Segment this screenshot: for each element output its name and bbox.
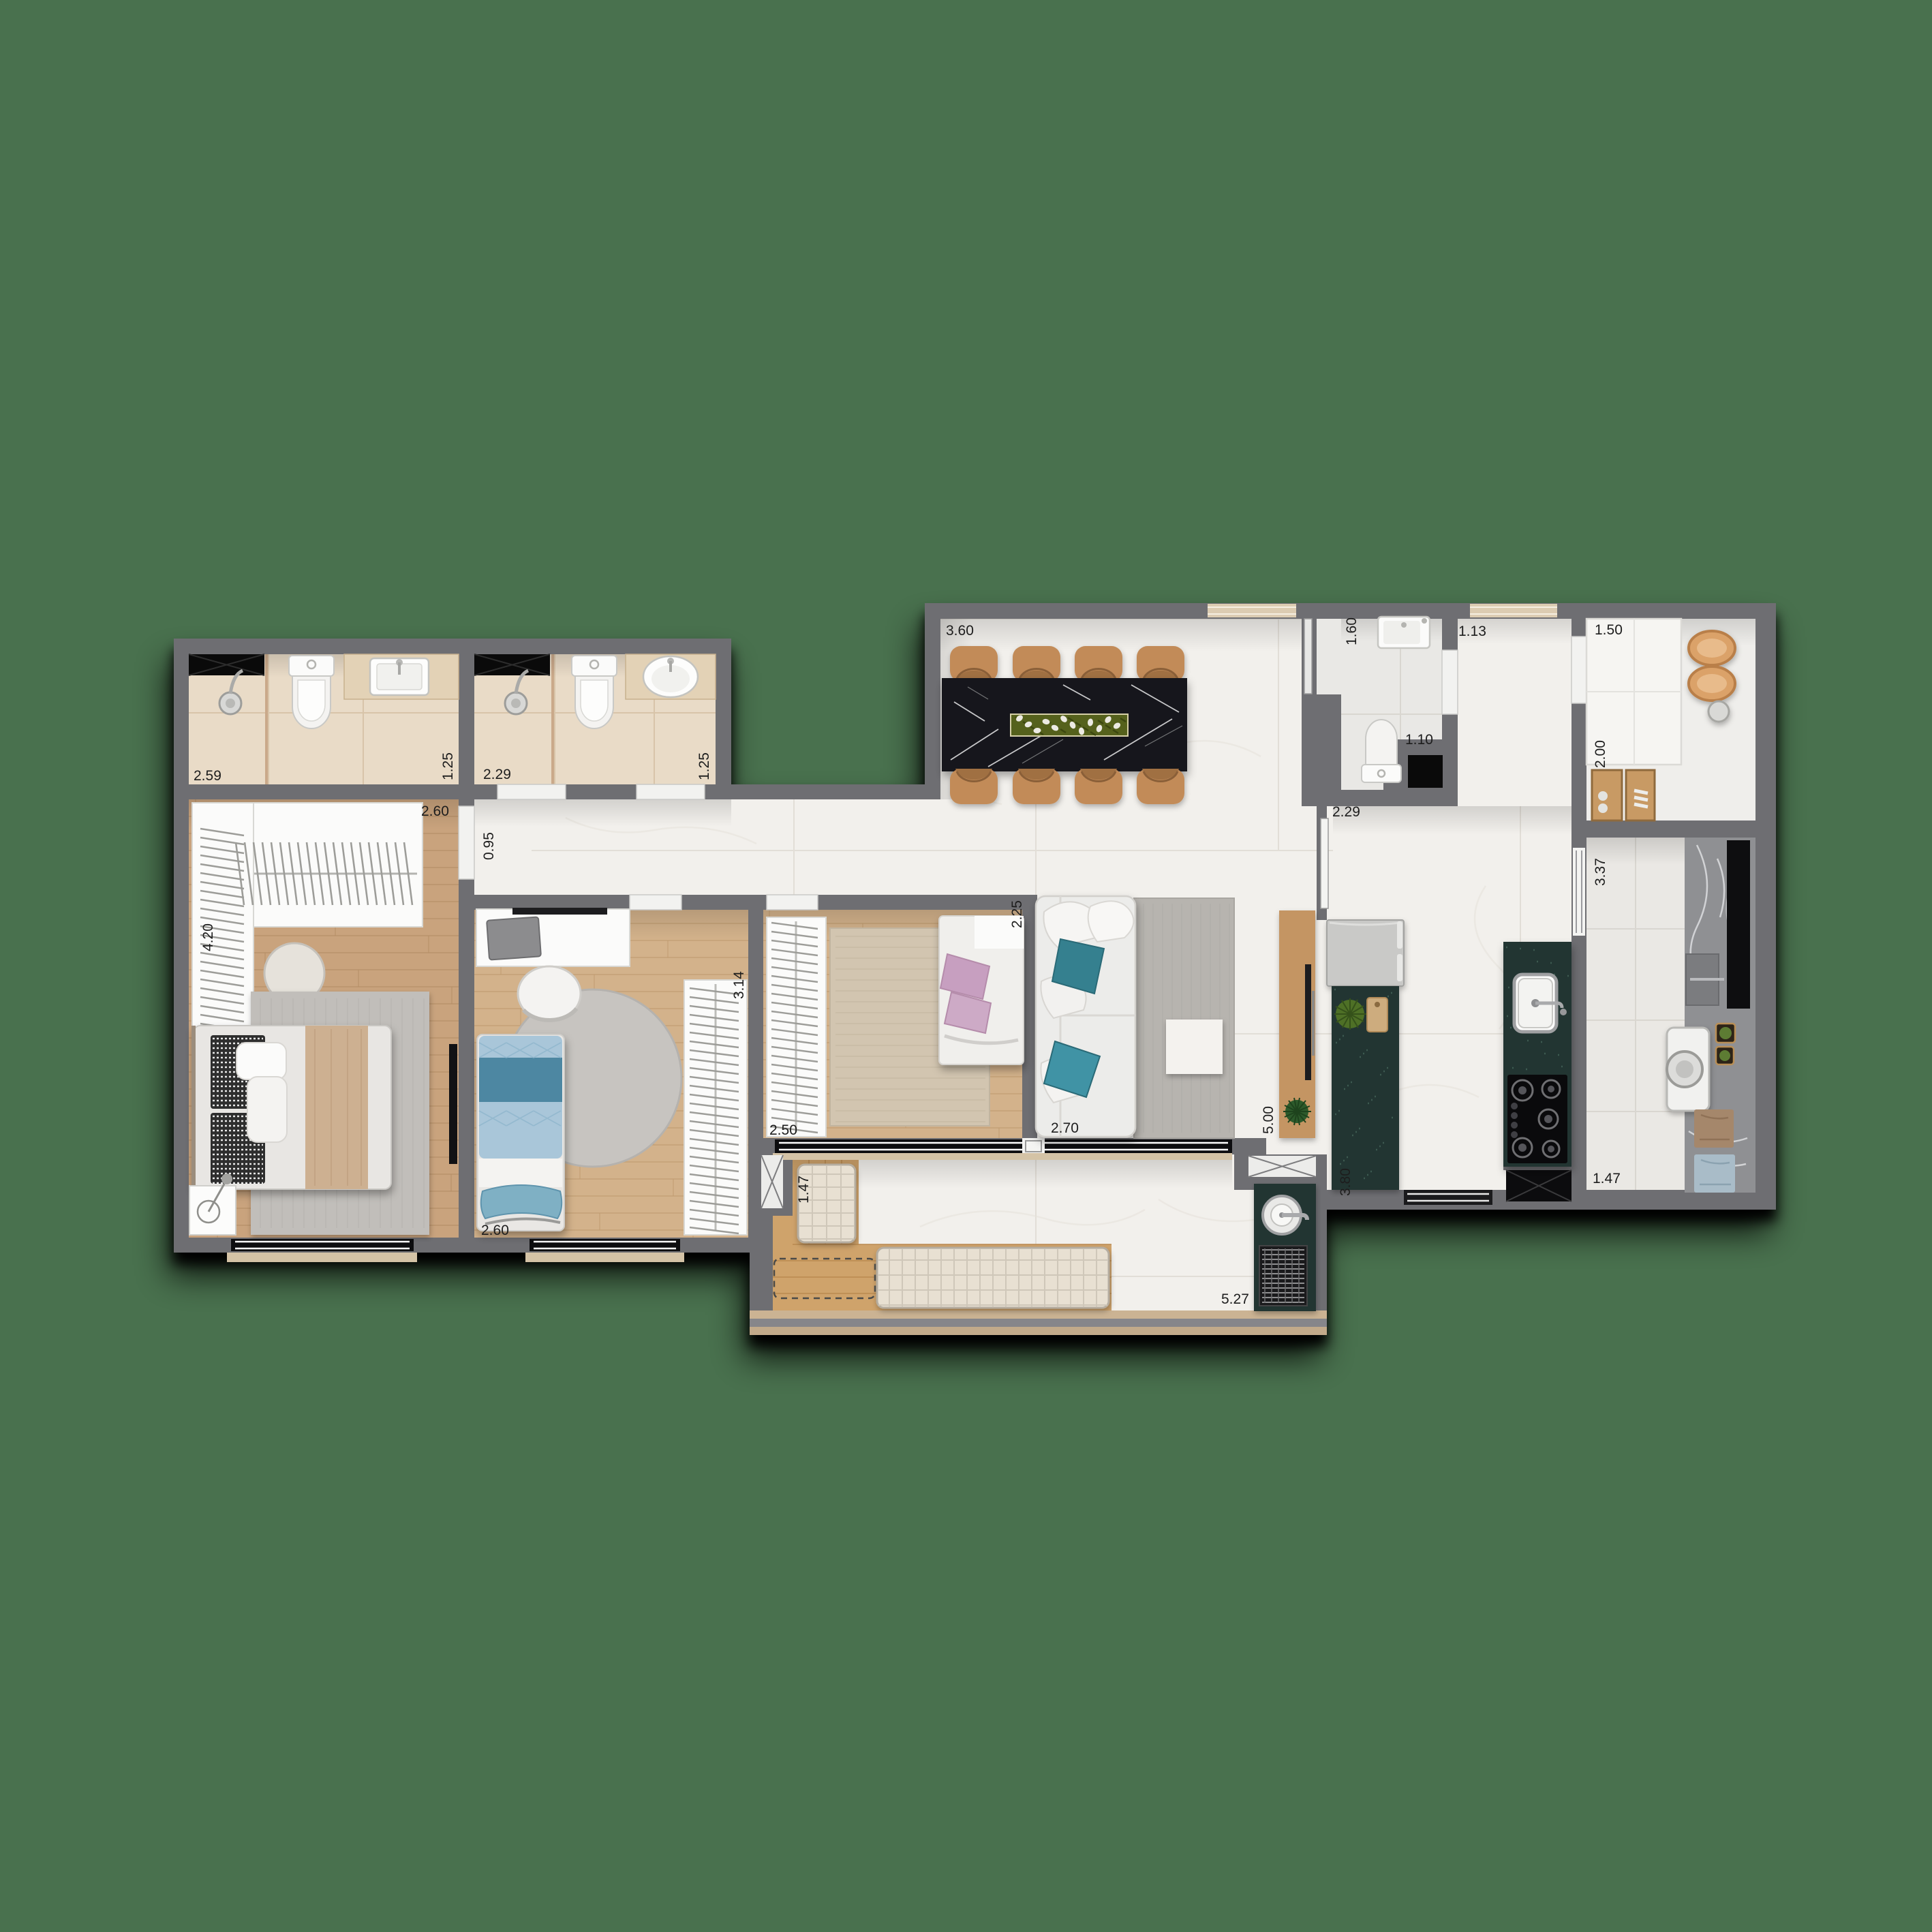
- svg-text:3.60: 3.60: [946, 623, 974, 639]
- svg-text:5.27: 5.27: [1221, 1291, 1249, 1307]
- svg-text:2.60: 2.60: [421, 803, 449, 819]
- svg-text:3.14: 3.14: [731, 971, 747, 999]
- svg-text:2.60: 2.60: [481, 1223, 509, 1238]
- svg-text:3.80: 3.80: [1338, 1168, 1353, 1196]
- svg-text:1.47: 1.47: [1593, 1171, 1621, 1186]
- svg-text:1.47: 1.47: [796, 1176, 812, 1203]
- svg-text:3.37: 3.37: [1593, 858, 1608, 886]
- svg-text:5.00: 5.00: [1261, 1106, 1276, 1134]
- svg-text:2.00: 2.00: [1593, 740, 1608, 768]
- svg-text:2.50: 2.50: [769, 1122, 797, 1138]
- svg-text:2.29: 2.29: [483, 767, 511, 782]
- svg-text:2.29: 2.29: [1332, 804, 1360, 820]
- svg-text:1.60: 1.60: [1344, 617, 1360, 645]
- svg-text:1.25: 1.25: [440, 752, 456, 780]
- svg-text:1.13: 1.13: [1458, 624, 1486, 639]
- svg-text:1.10: 1.10: [1405, 732, 1433, 748]
- svg-text:2.59: 2.59: [194, 768, 221, 784]
- svg-text:4.20: 4.20: [200, 923, 216, 951]
- svg-text:1.50: 1.50: [1595, 622, 1623, 638]
- svg-text:0.95: 0.95: [481, 832, 497, 860]
- svg-text:1.25: 1.25: [696, 752, 712, 780]
- svg-text:2.70: 2.70: [1051, 1120, 1079, 1136]
- svg-text:2.25: 2.25: [1009, 900, 1025, 928]
